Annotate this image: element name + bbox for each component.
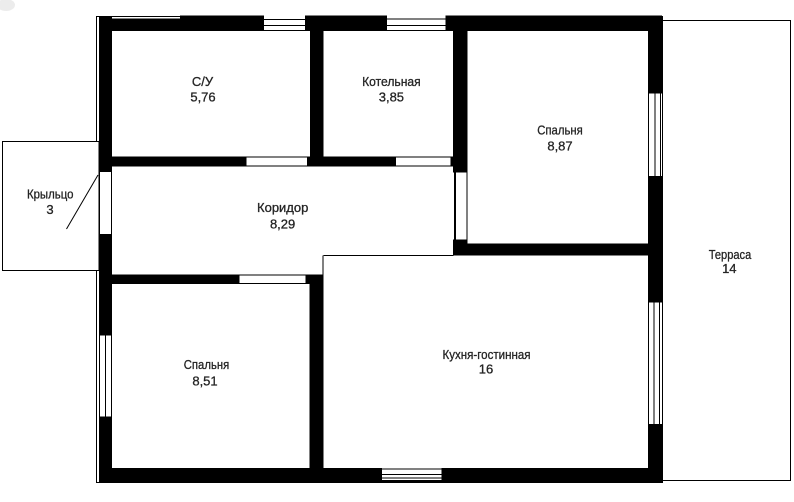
svg-text:16: 16 bbox=[479, 362, 493, 377]
svg-text:8,29: 8,29 bbox=[270, 217, 295, 232]
svg-text:Спальня: Спальня bbox=[184, 357, 230, 372]
svg-text:Котельная: Котельная bbox=[362, 74, 421, 89]
svg-text:С/У: С/У bbox=[192, 74, 214, 89]
svg-text:8,51: 8,51 bbox=[192, 374, 217, 389]
svg-text:Спальня: Спальня bbox=[537, 123, 583, 138]
svg-text:3,85: 3,85 bbox=[379, 90, 404, 105]
svg-text:Кухня-гостинная: Кухня-гостинная bbox=[443, 347, 531, 362]
svg-text:Крыльцо: Крыльцо bbox=[27, 187, 74, 202]
svg-text:5,76: 5,76 bbox=[190, 90, 215, 105]
svg-text:8,87: 8,87 bbox=[547, 139, 572, 154]
svg-text:Терраса: Терраса bbox=[709, 247, 752, 262]
svg-text:3: 3 bbox=[46, 202, 53, 217]
svg-text:14: 14 bbox=[722, 261, 736, 276]
svg-text:Коридор: Коридор bbox=[257, 200, 308, 215]
